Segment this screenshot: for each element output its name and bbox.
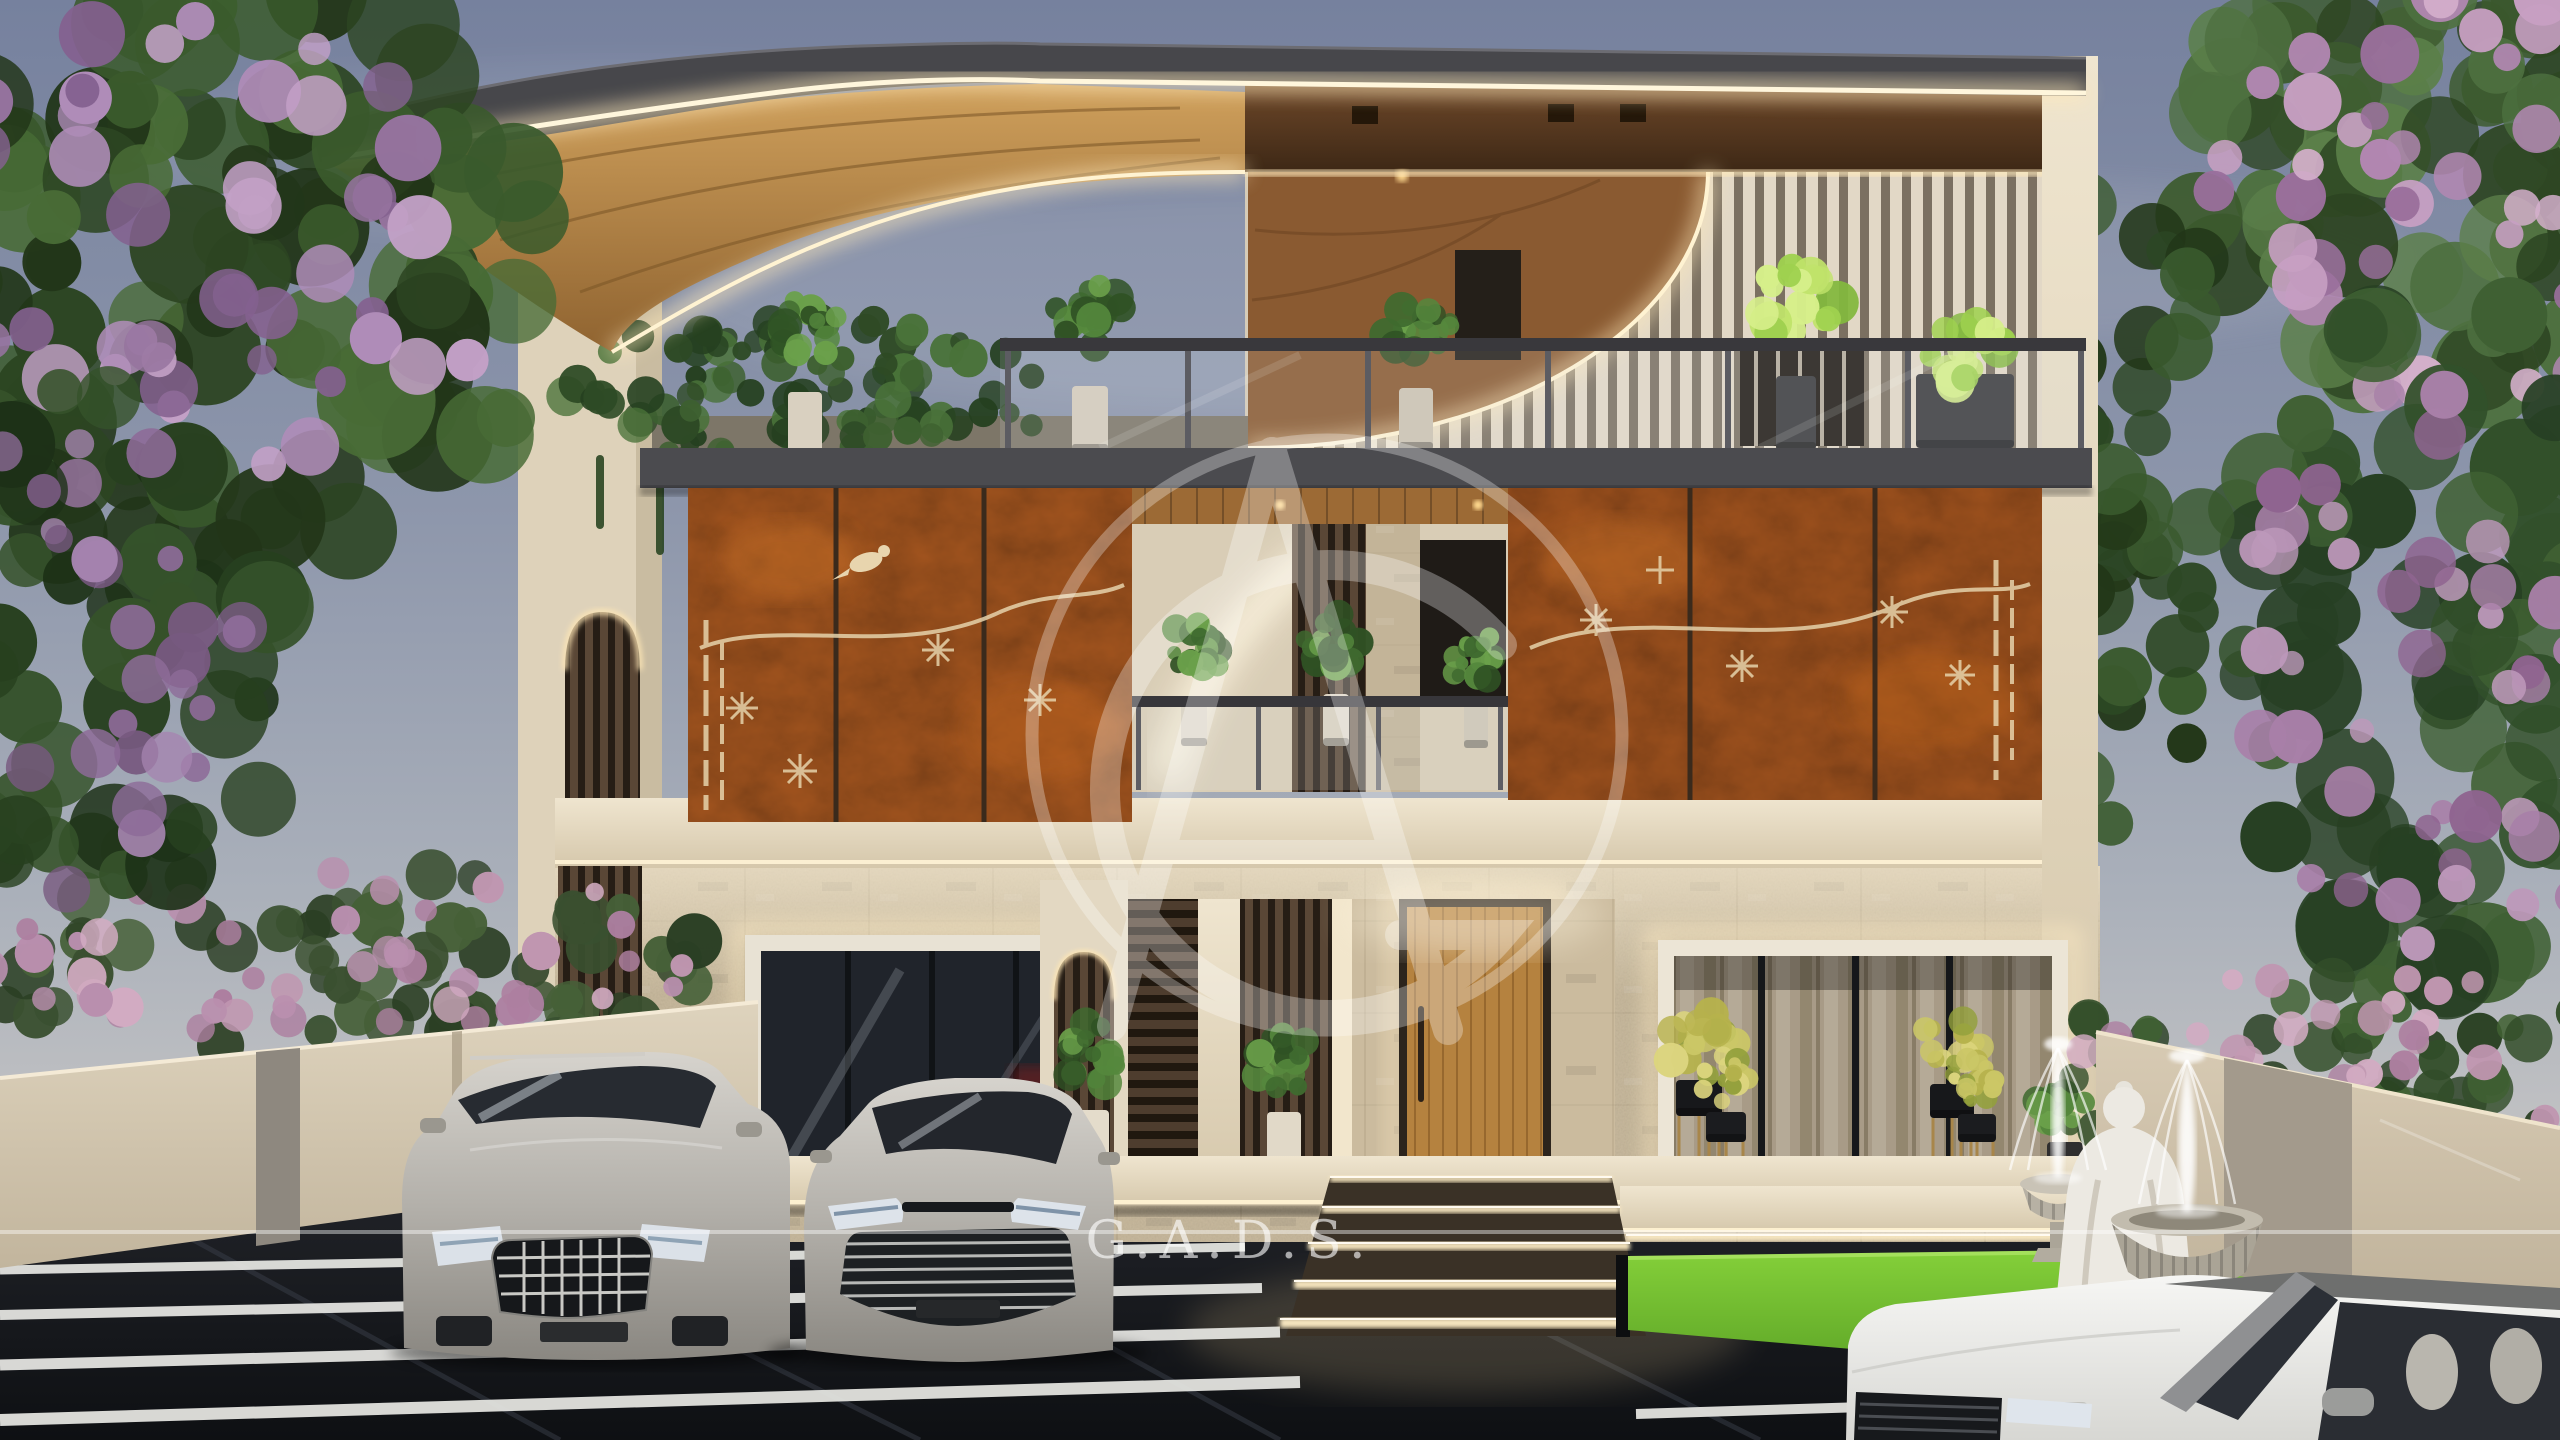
seat-headrest: [2490, 1328, 2542, 1404]
license-plate: [540, 1322, 628, 1342]
grille: [492, 1236, 652, 1318]
side-mirror: [810, 1150, 832, 1163]
license-plate: [916, 1300, 1000, 1318]
side-mirror: [2322, 1388, 2374, 1416]
wall-marble-strip: [256, 1048, 300, 1246]
side-mirror: [420, 1118, 446, 1133]
terrace-railing: [1000, 338, 2086, 448]
floor-slab: [640, 448, 2092, 488]
watermark-brand-text: G.A.D.S.: [1086, 1211, 1375, 1271]
side-mirror: [1098, 1152, 1120, 1165]
seat-headrest: [2406, 1334, 2458, 1410]
side-mirror: [736, 1122, 762, 1137]
render-canvas: G.A.D.S.: [0, 0, 2560, 1440]
corten-panels-right: [1508, 488, 2042, 800]
scene-svg: G.A.D.S.: [0, 0, 2560, 1440]
suv-silver: [390, 1052, 800, 1369]
corten-panels-left: [688, 488, 1132, 822]
